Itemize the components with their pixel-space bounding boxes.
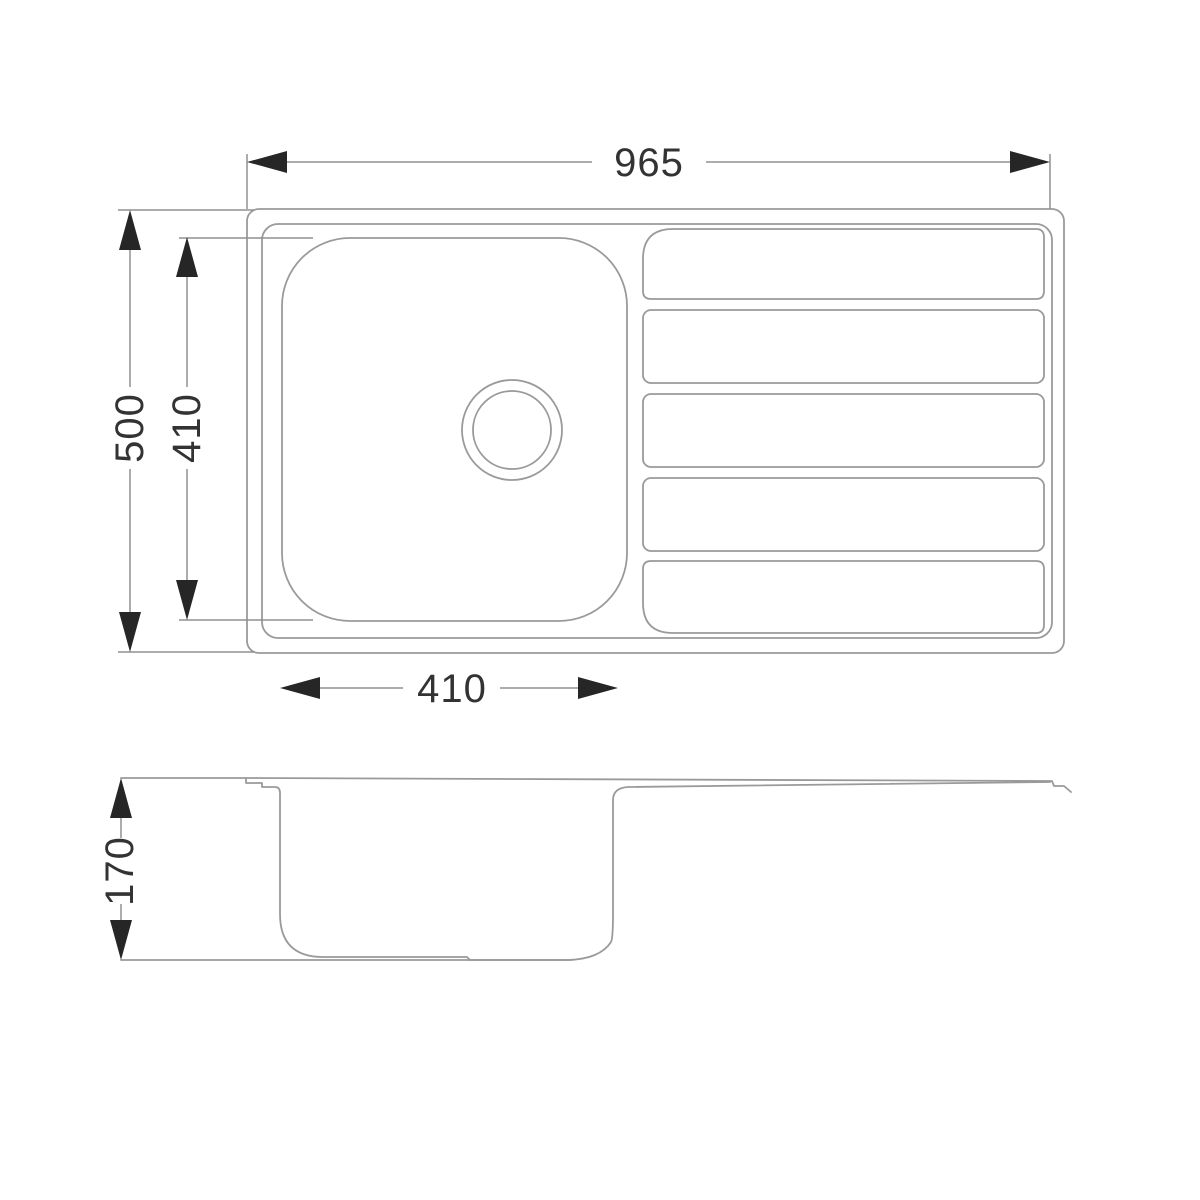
drainer-groove-4 [643,478,1044,551]
drain-outer-circle [462,380,562,480]
bowl-outline [282,238,627,621]
dimension-label-bowl-height: 170 [98,836,142,906]
side-bowl-profile [246,778,1050,960]
arrowhead-up-icon [110,778,132,818]
top-view [247,209,1064,653]
arrowhead-left-icon [247,151,287,173]
dimension-label-overall-depth: 500 [108,393,152,463]
sink-deck-edge [262,224,1052,638]
drawing-canvas: 965 500 410 410 170 [0,0,1200,1200]
sink-outer-edge [247,209,1064,653]
side-top-rim-line [121,778,1071,792]
arrowhead-down-icon [119,612,141,652]
dimension-arrowheads [110,151,1050,960]
arrowhead-right-icon [578,677,618,699]
dimension-label-overall-width: 965 [614,141,684,185]
drainer-groove-3 [643,394,1044,467]
arrowhead-down-icon [110,920,132,960]
dimension-label-bowl-width: 410 [417,667,487,711]
dimension-label-bowl-depth: 410 [165,393,209,463]
drainer-groove-5 [643,561,1044,633]
drainer-groove-2 [643,310,1044,383]
arrowhead-left-icon [280,677,320,699]
arrowhead-up-icon [119,210,141,250]
drain-inner-circle [473,391,551,469]
side-view [121,778,1071,960]
arrowhead-up-icon [176,237,198,277]
arrowhead-right-icon [1010,151,1050,173]
arrowhead-down-icon [176,580,198,620]
sink-dimension-drawing: 965 500 410 410 170 [0,0,1200,1200]
dimension-lines [118,154,1050,921]
drainer-groove-1 [643,229,1044,299]
